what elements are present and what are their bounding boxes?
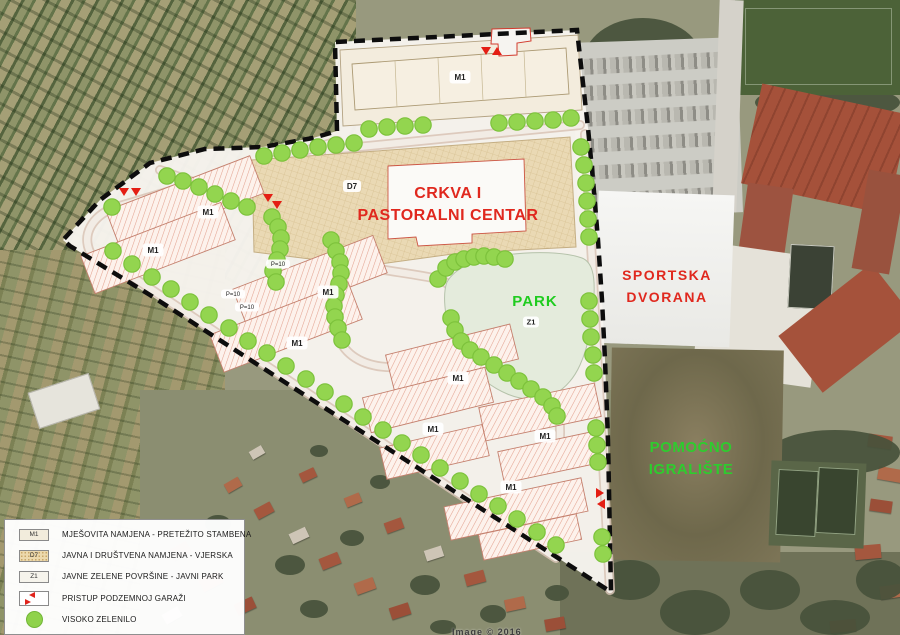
svg-text:M1: M1 <box>291 339 303 348</box>
legend-swatch-d7: D7 <box>19 550 49 562</box>
legend-swatch-garage-icon <box>19 591 49 606</box>
svg-text:Z1: Z1 <box>527 318 536 327</box>
svg-text:P=10: P=10 <box>240 305 255 311</box>
screenshot-root: M1M1M1M1M1M1M1M1M1D7Z1P=10P=10P=10 CRKVA… <box>0 0 900 635</box>
legend-label-z1: JAVNE ZELENE POVRŠINE - JAVNI PARK <box>62 572 224 581</box>
left-triangle-icon <box>29 592 35 598</box>
park-label: PARK <box>485 293 585 310</box>
svg-text:M1: M1 <box>427 425 439 434</box>
church-label-line2: PASTORALNI CENTAR <box>328 205 568 227</box>
svg-text:M1: M1 <box>452 374 464 383</box>
sports-hall-label-line2: DVORANA <box>597 286 737 308</box>
legend: M1 MJEŠOVITA NAMJENA - PRETEŽITO STAMBEN… <box>4 519 245 635</box>
legend-swatch-greenery-icon <box>19 611 49 627</box>
svg-text:M1: M1 <box>539 432 551 441</box>
church-label-line1: CRKVA I <box>328 183 568 205</box>
legend-label-d7: JAVNA I DRUŠTVENA NAMJENA - VJERSKA <box>62 551 233 560</box>
legend-label-m1: MJEŠOVITA NAMJENA - PRETEŽITO STAMBENA <box>62 530 251 539</box>
legend-label-greenery: VISOKO ZELENILO <box>62 615 137 624</box>
svg-text:P=10: P=10 <box>271 262 286 268</box>
right-triangle-icon <box>25 599 31 605</box>
svg-text:P=10: P=10 <box>226 292 241 298</box>
church-label: CRKVA I PASTORALNI CENTAR <box>328 183 568 227</box>
legend-row-d7: D7 JAVNA I DRUŠTVENA NAMJENA - VJERSKA <box>5 546 244 565</box>
svg-text:M1: M1 <box>147 246 159 255</box>
sports-hall-label: SPORTSKA DVORANA <box>597 264 737 308</box>
svg-text:M1: M1 <box>454 73 466 82</box>
svg-text:M1: M1 <box>322 288 334 297</box>
legend-label-garage: PRISTUP PODZEMNOJ GARAŽI <box>62 594 186 603</box>
aux-field-label: POMOĆNO IGRALIŠTE <box>616 437 766 481</box>
svg-text:M1: M1 <box>505 483 517 492</box>
legend-row-m1: M1 MJEŠOVITA NAMJENA - PRETEŽITO STAMBEN… <box>5 525 244 544</box>
aux-field-label-line1: POMOĆNO <box>616 437 766 459</box>
legend-row-z1: Z1 JAVNE ZELENE POVRŠINE - JAVNI PARK <box>5 567 244 586</box>
legend-row-greenery: VISOKO ZELENILO <box>5 610 244 629</box>
legend-swatch-m1: M1 <box>19 529 49 541</box>
legend-row-garage: PRISTUP PODZEMNOJ GARAŽI <box>5 589 244 608</box>
aux-field-label-line2: IGRALIŠTE <box>616 459 766 481</box>
imagery-watermark: Image © 2016 <box>452 627 522 635</box>
svg-text:M1: M1 <box>202 208 214 217</box>
sports-hall-label-line1: SPORTSKA <box>597 264 737 286</box>
legend-swatch-z1: Z1 <box>19 571 49 583</box>
